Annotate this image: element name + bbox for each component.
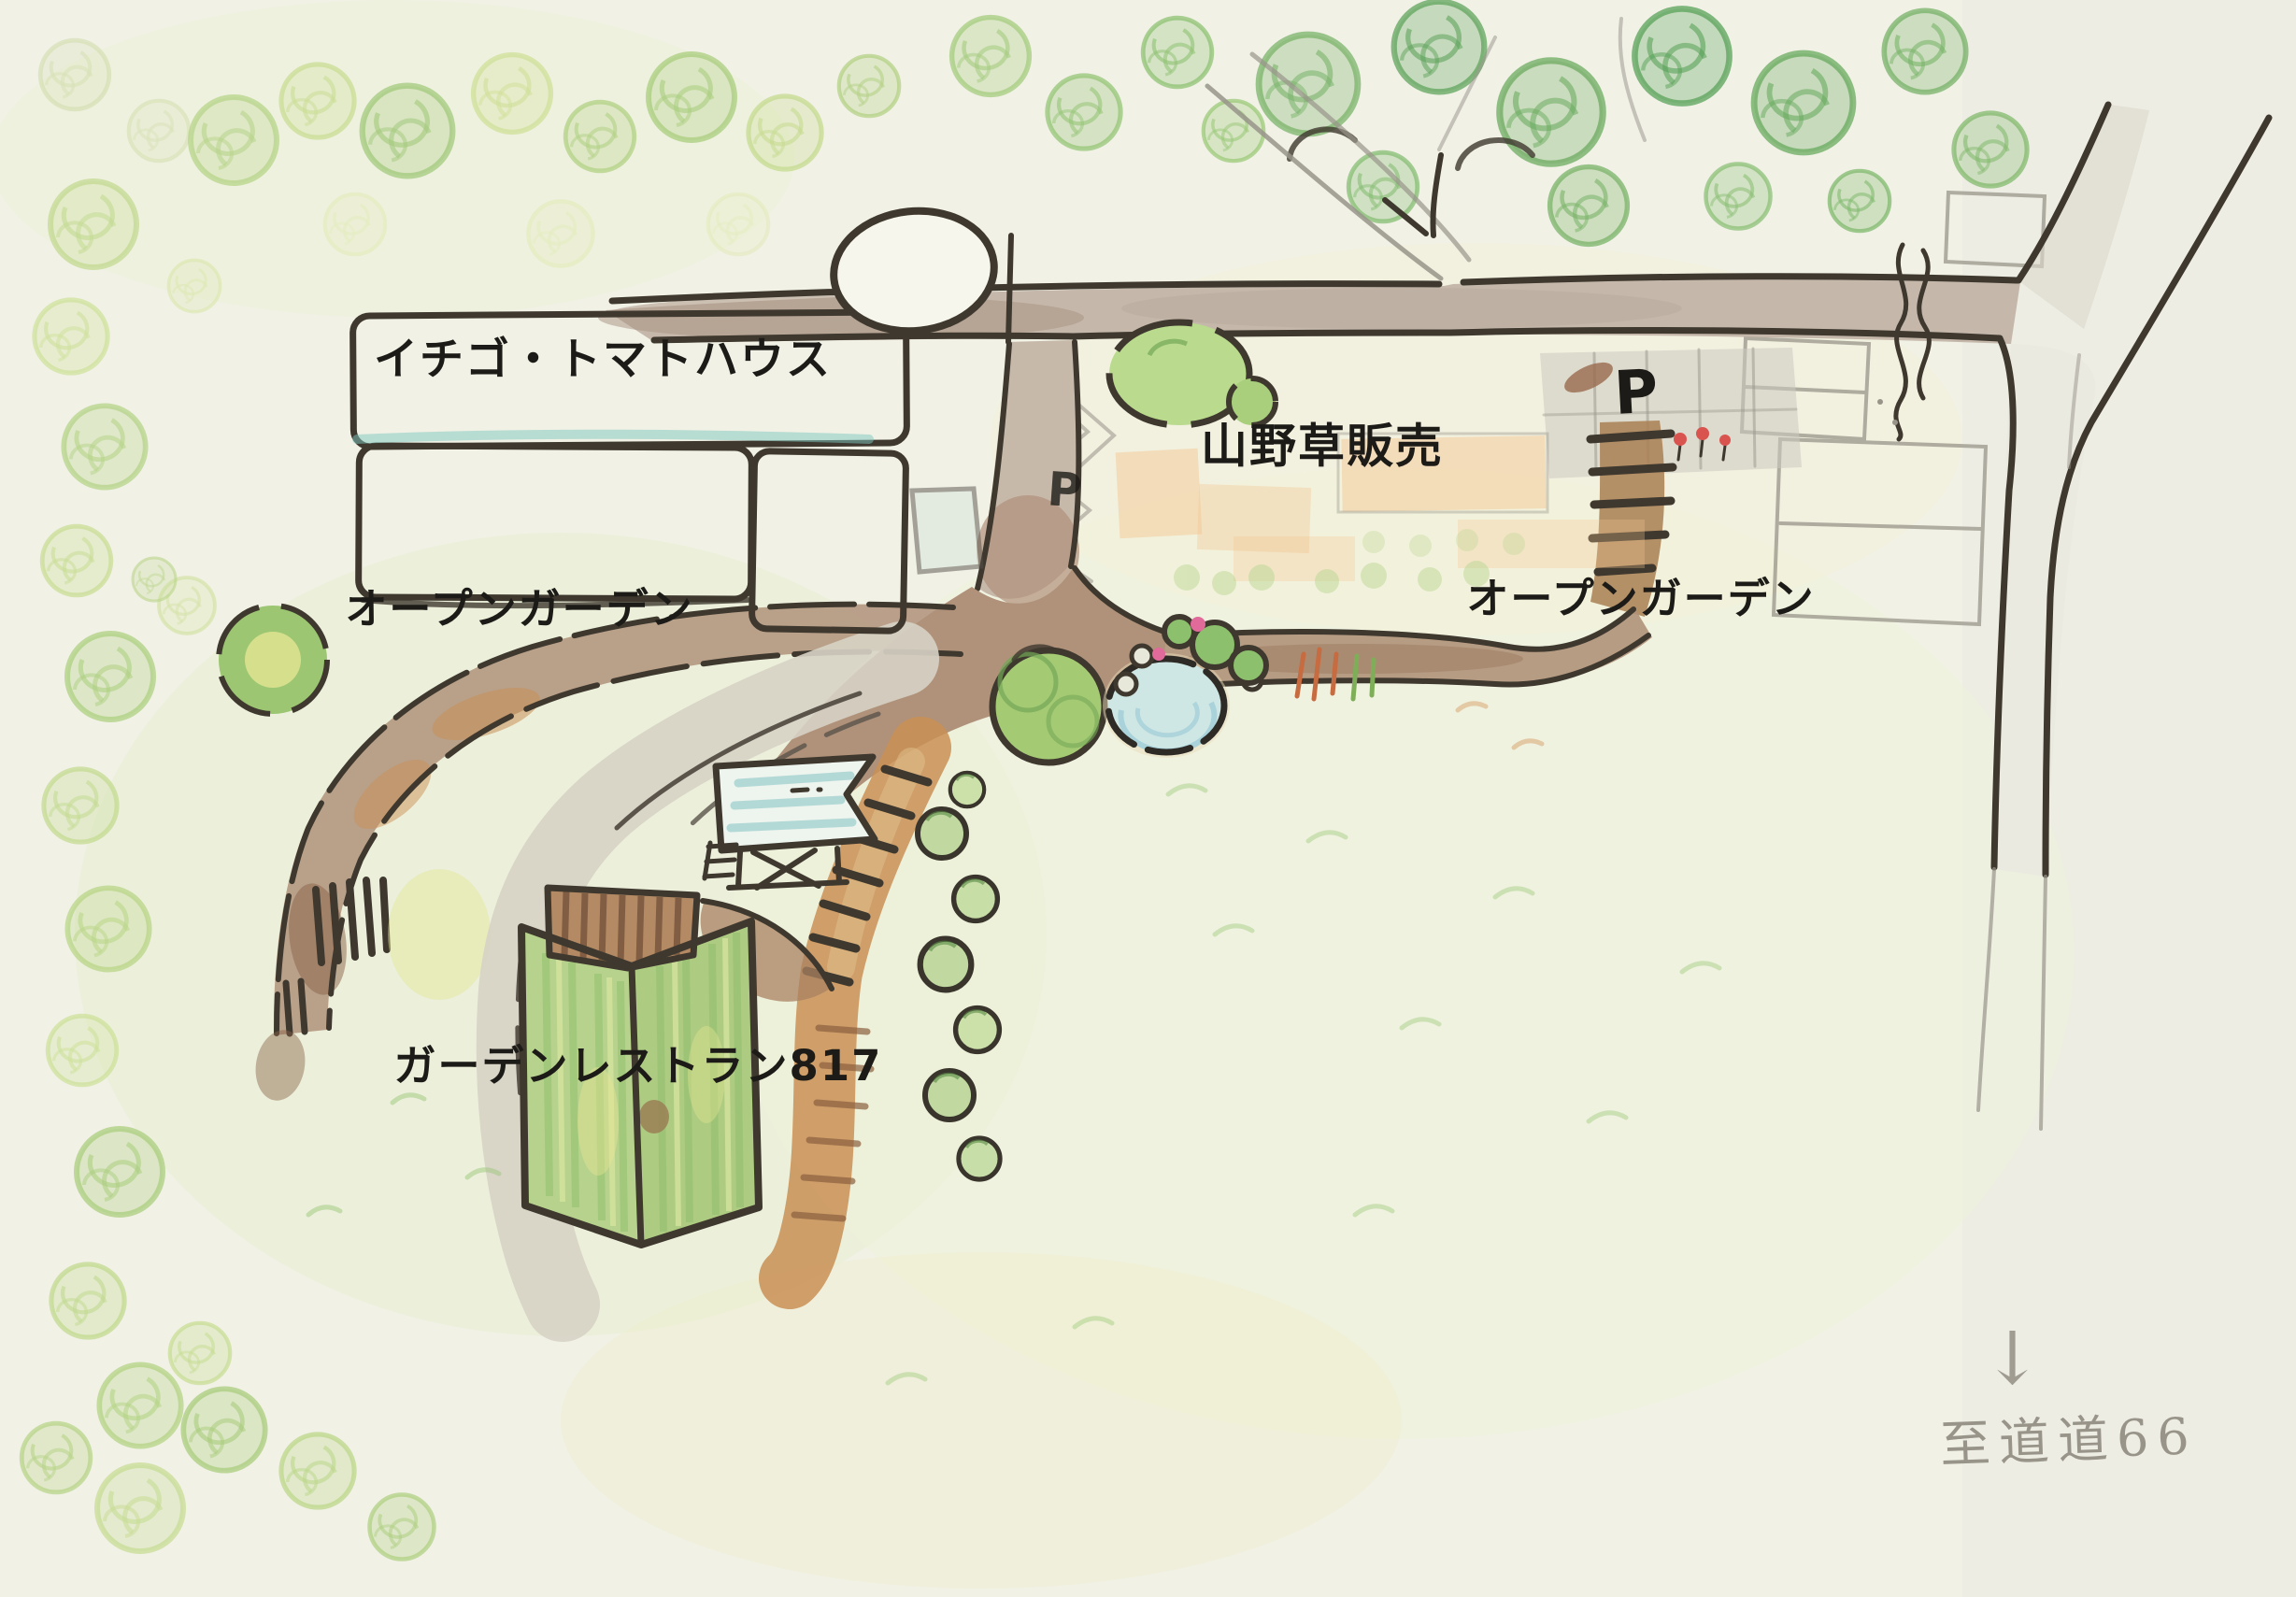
greenhouse-annex <box>912 489 981 572</box>
label-wild-plant-sales: 山野草販売 <box>1201 420 1444 474</box>
parking-area <box>1540 348 1802 478</box>
parking-sign-small: P <box>1046 462 1086 519</box>
parking-sign-main: P <box>1612 357 1661 428</box>
down-arrow-icon: ↓ <box>1982 1318 2051 1402</box>
label-open-garden-left: オープンガーデン <box>345 584 693 634</box>
label-strawberry-tomato-house: イチゴ・トマトハウス <box>374 335 832 386</box>
junction-tree <box>992 647 1105 763</box>
label-garden-restaurant: ガーデンレストラン817 <box>394 1041 883 1091</box>
garden-map-page: イチゴ・トマトハウス 山野草販売 オープンガーデン オープンガーデン ガーデンレ… <box>0 0 2296 1597</box>
label-to-route-66: 至道道66 <box>1939 1406 2199 1475</box>
garden-map-canvas: イチゴ・トマトハウス 山野草販売 オープンガーデン オープンガーデン ガーデンレ… <box>0 0 2296 1597</box>
label-open-garden-right: オープンガーデン <box>1466 574 1815 623</box>
